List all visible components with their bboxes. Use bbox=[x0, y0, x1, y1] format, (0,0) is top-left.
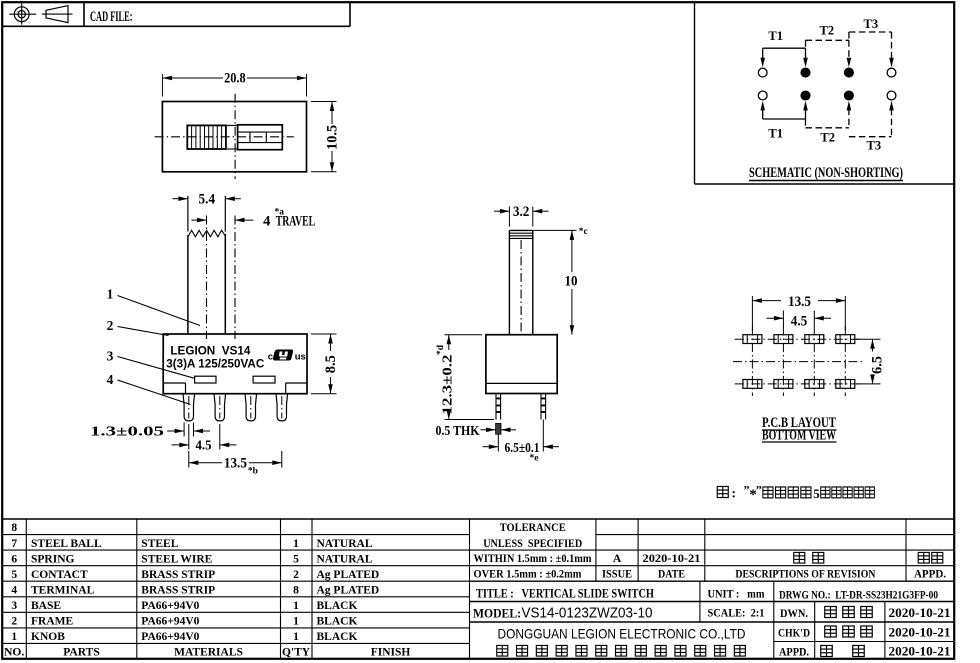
svg-text:3: 3 bbox=[107, 349, 114, 364]
svg-text:SPRING: SPRING bbox=[31, 553, 75, 565]
svg-text:T2: T2 bbox=[820, 24, 835, 38]
svg-text:T3: T3 bbox=[867, 138, 882, 152]
svg-text:6.5: 6.5 bbox=[870, 356, 886, 374]
svg-text:Q'TY: Q'TY bbox=[282, 647, 311, 659]
svg-text:*a: *a bbox=[275, 208, 285, 218]
svg-text:1: 1 bbox=[11, 631, 17, 643]
svg-text:T3: T3 bbox=[864, 17, 879, 31]
svg-text:A: A bbox=[613, 553, 622, 565]
svg-text:BLACK: BLACK bbox=[317, 616, 358, 628]
svg-text:Ag PLATED: Ag PLATED bbox=[317, 584, 380, 596]
svg-text:3.2: 3.2 bbox=[513, 204, 530, 220]
svg-text:DRWG NO.: LT-DR-SS23H21G3FP-0: DRWG NO.: LT-DR-SS23H21G3FP-00 bbox=[779, 588, 938, 602]
svg-text:*d: *d bbox=[436, 344, 446, 355]
svg-text:Ag PLATED: Ag PLATED bbox=[317, 569, 380, 581]
svg-text:T1: T1 bbox=[768, 127, 783, 141]
svg-text:us: us bbox=[295, 352, 306, 363]
svg-text:T1: T1 bbox=[768, 29, 783, 43]
svg-text:PA66+94V0: PA66+94V0 bbox=[141, 600, 199, 612]
svg-text:2: 2 bbox=[107, 318, 114, 333]
svg-text:BOTTOM VIEW: BOTTOM VIEW bbox=[762, 427, 836, 443]
svg-text:4: 4 bbox=[263, 214, 270, 230]
svg-text:CONTACT: CONTACT bbox=[31, 569, 88, 581]
svg-text:ISSUE: ISSUE bbox=[602, 569, 632, 581]
svg-text:3: 3 bbox=[11, 600, 17, 612]
svg-text:2020-10-21: 2020-10-21 bbox=[889, 645, 951, 659]
svg-text:CHK'D: CHK'D bbox=[778, 626, 810, 640]
svg-text:CAD FILE:: CAD FILE: bbox=[90, 9, 133, 25]
svg-text:APPD.: APPD. bbox=[914, 569, 946, 581]
svg-text:1: 1 bbox=[293, 616, 299, 628]
svg-text:TITLE : VERTICAL SLIDE SWITC: TITLE : VERTICAL SLIDE SWITCH bbox=[476, 586, 654, 601]
svg-text:DWN.: DWN. bbox=[780, 606, 808, 620]
svg-text:1.3±0.05: 1.3±0.05 bbox=[90, 423, 164, 438]
svg-text:3(3)A 125/250VAC: 3(3)A 125/250VAC bbox=[166, 357, 264, 371]
svg-text:4.5: 4.5 bbox=[196, 437, 212, 452]
svg-text:BASE: BASE bbox=[31, 600, 61, 612]
svg-text:DONGGUAN LEGION ELECTRONIC CO.: DONGGUAN LEGION ELECTRONIC CO.,LTD bbox=[498, 626, 746, 642]
svg-text:APPD.: APPD. bbox=[779, 645, 809, 659]
svg-text:NATURAL: NATURAL bbox=[317, 553, 373, 565]
svg-text:1: 1 bbox=[293, 538, 299, 550]
svg-text:BLACK: BLACK bbox=[317, 600, 358, 612]
svg-text:DESCRIPTIONS OF REVISION: DESCRIPTIONS OF REVISION bbox=[735, 569, 876, 581]
svg-text:12.3±0.2: 12.3±0.2 bbox=[440, 354, 455, 414]
svg-text:STEEL WIRE: STEEL WIRE bbox=[141, 553, 212, 565]
svg-text:4: 4 bbox=[11, 584, 17, 596]
svg-text:BRASS STRIP: BRASS STRIP bbox=[141, 584, 215, 596]
svg-text:1: 1 bbox=[293, 600, 299, 612]
svg-text:5: 5 bbox=[813, 486, 820, 501]
svg-text:2: 2 bbox=[11, 616, 17, 628]
svg-text:2020-10-21: 2020-10-21 bbox=[889, 606, 951, 620]
svg-text:T2: T2 bbox=[820, 131, 835, 145]
svg-text:8: 8 bbox=[293, 584, 299, 596]
svg-text:TOLERANCE: TOLERANCE bbox=[500, 522, 566, 534]
svg-text:FRAME: FRAME bbox=[31, 616, 73, 628]
svg-text:STEEL: STEEL bbox=[141, 538, 178, 550]
svg-text:FINISH: FINISH bbox=[371, 647, 411, 659]
svg-text:MATERIALS: MATERIALS bbox=[174, 647, 243, 659]
svg-text:KNOB: KNOB bbox=[31, 631, 65, 643]
svg-text:NO.: NO. bbox=[4, 647, 24, 659]
svg-text:13.5: 13.5 bbox=[788, 294, 811, 310]
svg-text:PA66+94V0: PA66+94V0 bbox=[141, 616, 199, 628]
svg-text:7: 7 bbox=[11, 538, 17, 550]
svg-text:10.5: 10.5 bbox=[324, 125, 340, 150]
svg-text:4.5: 4.5 bbox=[791, 314, 808, 330]
svg-text:5: 5 bbox=[293, 553, 299, 565]
svg-text:2020-10-21: 2020-10-21 bbox=[889, 626, 951, 640]
svg-text:VS14-0123ZWZ03-10: VS14-0123ZWZ03-10 bbox=[522, 606, 653, 622]
svg-text:SCHEMATIC (NON-SHORTING): SCHEMATIC (NON-SHORTING) bbox=[749, 165, 903, 181]
svg-text:4: 4 bbox=[107, 372, 114, 387]
svg-text:BRASS STRIP: BRASS STRIP bbox=[141, 569, 215, 581]
svg-text:UNLESS SPECIFIED: UNLESS SPECIFIED bbox=[483, 538, 582, 550]
svg-text:NATURAL: NATURAL bbox=[317, 538, 373, 550]
svg-text:13.5: 13.5 bbox=[224, 455, 247, 471]
svg-text:5: 5 bbox=[11, 569, 17, 581]
svg-text:20.8: 20.8 bbox=[224, 71, 246, 87]
svg-text:WITHIN 1.5mm : ±0.1mm: WITHIN 1.5mm : ±0.1mm bbox=[474, 553, 592, 565]
svg-text:UNIT : mm: UNIT : mm bbox=[708, 587, 765, 601]
svg-text:MODEL:: MODEL: bbox=[473, 606, 521, 621]
svg-text:2020-10-21: 2020-10-21 bbox=[643, 553, 701, 565]
svg-text:1: 1 bbox=[293, 631, 299, 643]
svg-text:c: c bbox=[268, 352, 273, 363]
svg-text:TERMINAL: TERMINAL bbox=[31, 584, 95, 596]
svg-text:BLACK: BLACK bbox=[317, 631, 358, 643]
svg-text:*b: *b bbox=[248, 466, 258, 476]
svg-text:”: ” bbox=[756, 483, 762, 497]
svg-text:1: 1 bbox=[107, 287, 114, 302]
svg-text:5.4: 5.4 bbox=[199, 192, 216, 208]
svg-text:SCALE: 2:1: SCALE: 2:1 bbox=[708, 606, 765, 620]
svg-text:PARTS: PARTS bbox=[63, 647, 99, 659]
svg-text::: : bbox=[732, 486, 737, 501]
svg-text:6: 6 bbox=[11, 553, 17, 565]
svg-text:0.5 THK: 0.5 THK bbox=[436, 423, 480, 438]
svg-text:OVER 1.5mm : ±0.2mm: OVER 1.5mm : ±0.2mm bbox=[474, 569, 582, 581]
svg-text:8: 8 bbox=[11, 522, 17, 534]
svg-text:*c: *c bbox=[579, 227, 588, 237]
svg-text:DATE: DATE bbox=[658, 569, 685, 581]
svg-text:STEEL BALL: STEEL BALL bbox=[31, 538, 102, 550]
svg-text:2: 2 bbox=[293, 569, 299, 581]
svg-text:*e: *e bbox=[530, 453, 539, 463]
svg-text:10: 10 bbox=[565, 273, 578, 289]
svg-text:8.5: 8.5 bbox=[323, 355, 339, 373]
svg-text:PA66+94V0: PA66+94V0 bbox=[141, 631, 199, 643]
